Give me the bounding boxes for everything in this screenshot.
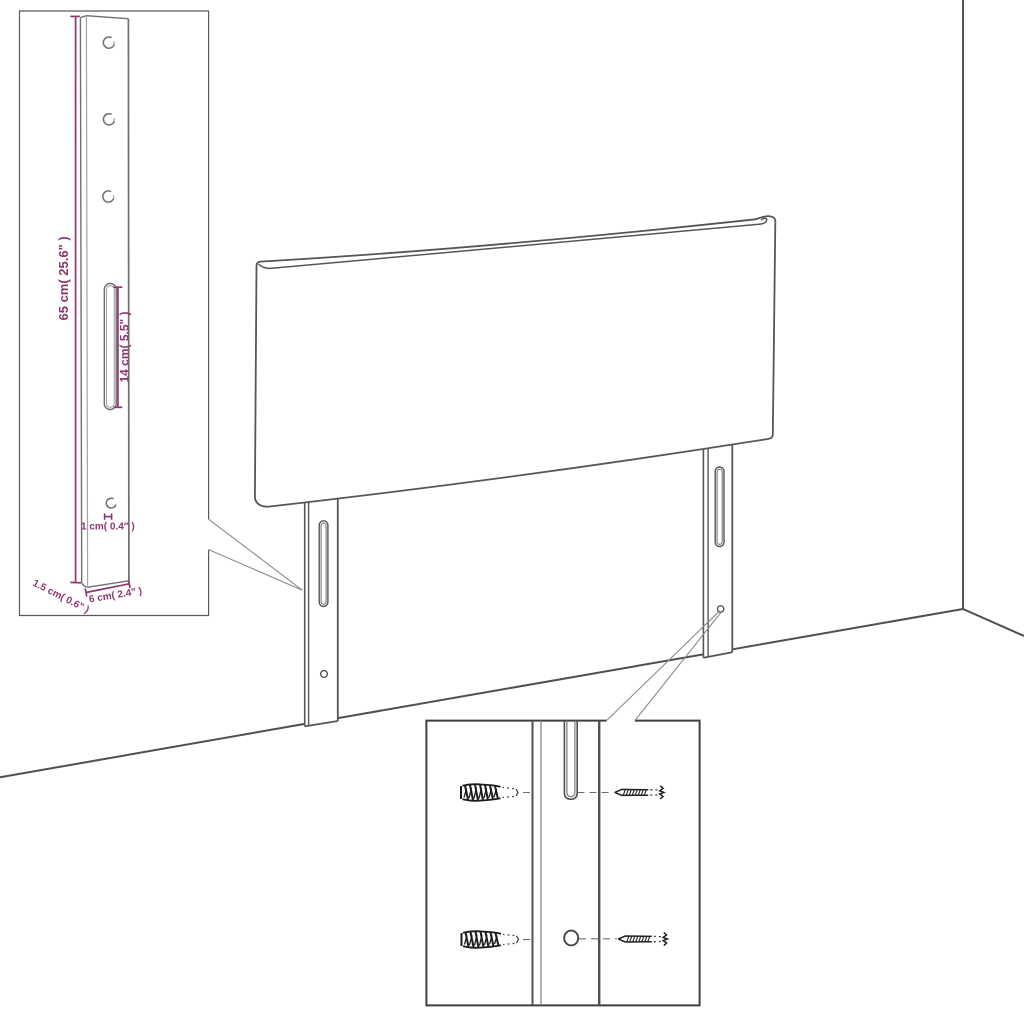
svg-text:14 cm( 5.5" ): 14 cm( 5.5" )	[118, 311, 132, 382]
svg-text:1 cm( 0.4" ): 1 cm( 0.4" )	[81, 522, 135, 533]
svg-text:65 cm( 25.6" ): 65 cm( 25.6" )	[56, 236, 71, 320]
